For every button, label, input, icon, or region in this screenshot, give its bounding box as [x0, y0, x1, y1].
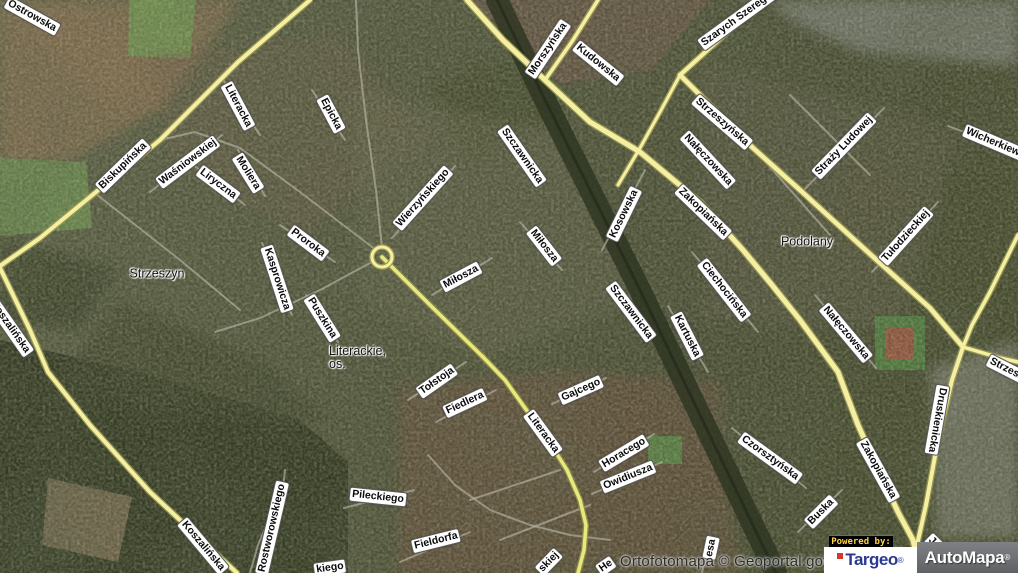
- attribution-text: Ortofotomapa © Geoportal.gov.pl: [620, 553, 846, 570]
- locality-label: Strzeszyn: [130, 268, 185, 281]
- automapa-registered-icon: ®: [1004, 553, 1010, 562]
- branding-bar: Powered by: Targeo ® AutoMapa ®: [824, 535, 1018, 573]
- aerial-basemap: [0, 0, 1018, 573]
- targeo-red-mark-icon: [837, 553, 843, 559]
- locality-label: Podolany: [781, 236, 833, 249]
- targeo-wordmark: Targeo: [845, 550, 897, 570]
- targeo-registered-icon: ®: [898, 556, 904, 565]
- targeo-logo[interactable]: Targeo ®: [824, 547, 917, 573]
- automapa-wordmark: AutoMapa: [925, 548, 1005, 568]
- map-canvas[interactable]: OstrowskaBiskupińskaLiterackaEpickaWaśni…: [0, 0, 1018, 573]
- locality-label: Literackie,os.: [329, 345, 386, 371]
- automapa-logo[interactable]: AutoMapa ®: [917, 542, 1018, 573]
